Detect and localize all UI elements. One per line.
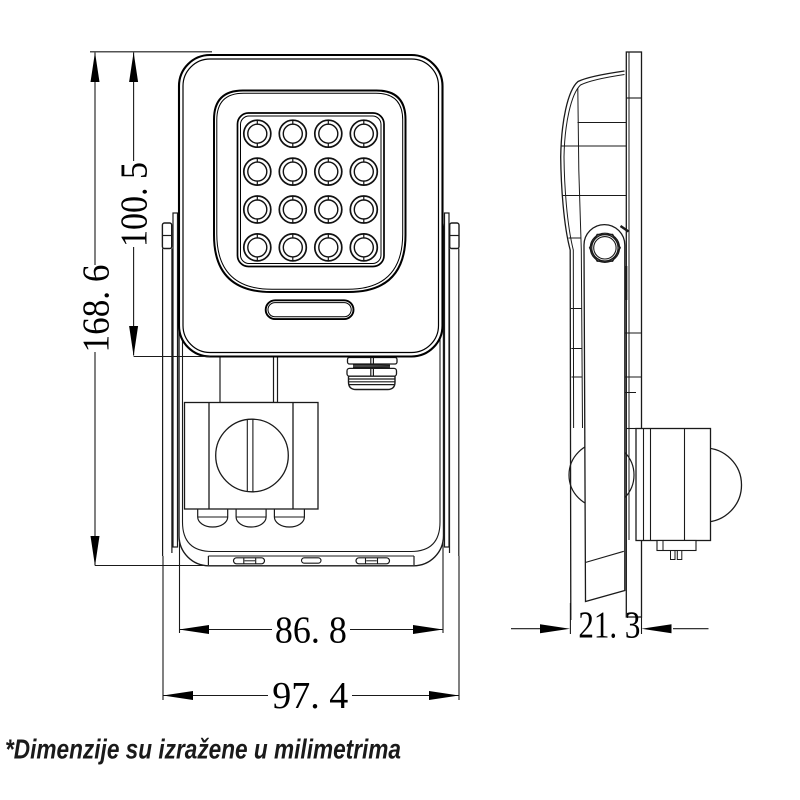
svg-text:97. 4: 97. 4 [272, 675, 348, 717]
svg-text:*Dimenzije su izražene u milim: *Dimenzije su izražene u milimetrima [5, 734, 401, 765]
svg-text:100. 5: 100. 5 [114, 162, 156, 247]
svg-text:86. 8: 86. 8 [275, 610, 347, 652]
svg-text:21. 3: 21. 3 [578, 605, 640, 647]
svg-text:168. 6: 168. 6 [76, 265, 118, 353]
